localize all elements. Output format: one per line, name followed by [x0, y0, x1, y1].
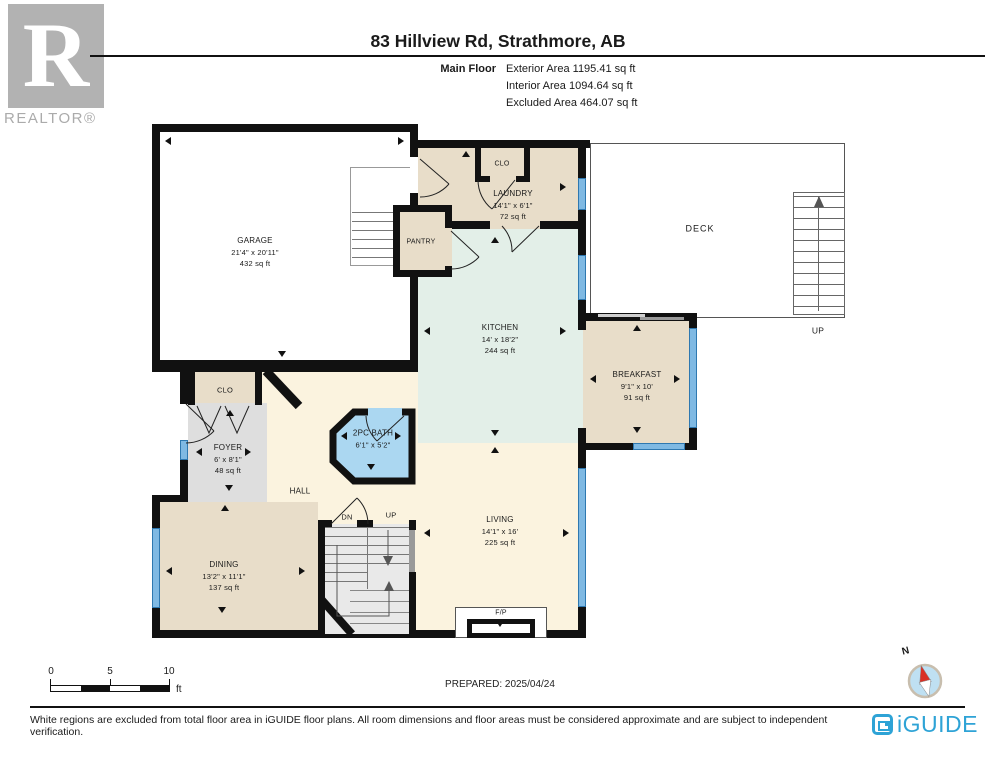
dimension-arrow-icon [221, 505, 229, 511]
dining-label: DINING13'2" x 11'1"137 sq ft [202, 559, 245, 594]
dimension-arrow-icon [491, 430, 499, 436]
fireplace-label: F/P [495, 607, 507, 619]
dimension-arrow-icon [299, 567, 305, 575]
iguide-logo: iGUIDE [872, 711, 978, 738]
dimension-arrow-icon [225, 485, 233, 491]
dimension-arrow-icon [633, 325, 641, 331]
dimension-arrow-icon [560, 183, 566, 191]
footer-divider [30, 706, 965, 708]
dimension-arrow-icon [633, 427, 641, 433]
dimension-arrow-icon [491, 447, 499, 453]
scale-unit: ft [176, 684, 182, 695]
dimension-arrow-icon [563, 529, 569, 537]
dimension-arrow-icon [165, 137, 171, 145]
dimension-arrow-icon [278, 126, 286, 132]
laundry-label: LAUNDRY14'1" x 6'1"72 sq ft [493, 188, 533, 223]
dimension-arrow-icon [278, 351, 286, 357]
iguide-brand-text: iGUIDE [897, 711, 978, 738]
dimension-arrow-icon [341, 432, 347, 440]
closet-label: CLO [495, 158, 510, 170]
door-opening [368, 408, 402, 416]
living-label: LIVING14'1" x 16'225 sq ft [482, 514, 519, 549]
hall-label: HALL [290, 485, 311, 497]
stair-arrows [337, 530, 389, 616]
dimension-arrow-icon [496, 621, 504, 627]
dimension-arrow-icon [424, 327, 430, 335]
diagonal-wall [266, 371, 299, 406]
footer-disclaimer: White regions are excluded from total fl… [30, 714, 830, 738]
dimension-arrow-icon [590, 375, 596, 383]
bath-label: 2PC BATH6'1" x 5'2" [353, 428, 393, 451]
stairs-dn-label: DN [341, 511, 352, 523]
sliding-door [598, 314, 645, 317]
scale-tick-5: 5 [107, 666, 113, 677]
breakfast-label: BREAKFAST9'1" x 10'91 sq ft [613, 369, 662, 404]
pantry-label: PANTRY [407, 236, 436, 248]
dimension-arrow-icon [245, 448, 251, 456]
deck-label: DECK [685, 223, 714, 235]
dimension-arrow-icon [367, 464, 375, 470]
iguide-icon-inner [878, 721, 890, 731]
compass-icon [895, 652, 957, 710]
garage-label: GARAGE21'4" x 20'11"432 sq ft [231, 235, 279, 270]
scale-seg [81, 686, 111, 691]
scale-tick-10: 10 [163, 666, 174, 677]
dimension-arrow-icon [226, 410, 234, 416]
scale-seg [51, 686, 81, 691]
kitchen-label: KITCHEN14' x 18'2"244 sq ft [482, 322, 519, 357]
dimension-arrow-icon [166, 567, 172, 575]
floorplan-page: R REALTOR® 83 Hillview Rd, Strathmore, A… [0, 0, 996, 768]
dimension-arrow-icon [491, 237, 499, 243]
scale-bar [50, 685, 170, 692]
scale-tick-0: 0 [48, 666, 54, 677]
dimension-arrow-icon [398, 137, 404, 145]
arrow-head-up [384, 581, 394, 591]
iguide-icon-dot [885, 723, 888, 726]
dimension-arrow-icon [462, 151, 470, 157]
dimension-arrow-icon [395, 432, 401, 440]
dimension-arrow-icon [218, 607, 226, 613]
closet-label: CLO [217, 384, 233, 396]
prepared-date: PREPARED: 2025/04/24 [400, 679, 600, 690]
arrow-head-up [814, 196, 824, 207]
arrow-head-down [383, 556, 393, 566]
deck-up-label: UP [812, 325, 824, 337]
stairs-up-label: UP [386, 509, 397, 521]
dimension-arrow-icon [560, 327, 566, 335]
sliding-door [640, 317, 684, 320]
dimension-arrow-icon [196, 448, 202, 456]
plan-annotations [0, 0, 996, 768]
dimension-arrow-icon [424, 529, 430, 537]
foyer-label: FOYER6' x 8'1"48 sq ft [214, 442, 243, 477]
dimension-arrow-icon [674, 375, 680, 383]
scale-seg [140, 686, 170, 691]
iguide-camera-icon [872, 714, 893, 735]
scale-seg [110, 686, 140, 691]
